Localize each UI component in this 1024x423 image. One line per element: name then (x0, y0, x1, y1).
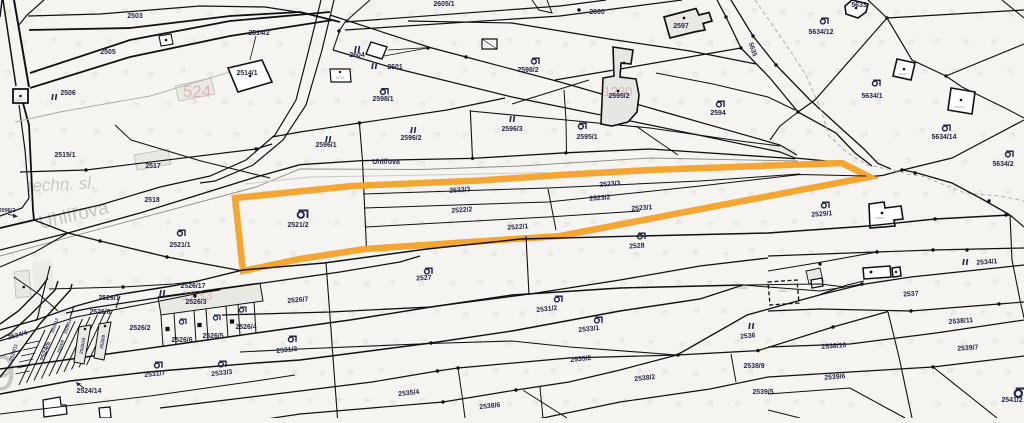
svg-text:2529/2: 2529/2 (875, 216, 885, 220)
svg-text:2506: 2506 (60, 90, 75, 97)
svg-text:2527: 2527 (416, 274, 432, 282)
svg-text:2526/5: 2526/5 (202, 333, 223, 340)
svg-text:2518: 2518 (144, 197, 159, 204)
svg-text:2539/7: 2539/7 (957, 344, 979, 352)
svg-text:2526/3: 2526/3 (185, 299, 206, 306)
svg-text:2514/1: 2514/1 (236, 70, 257, 77)
svg-text:2515/1: 2515/1 (54, 152, 75, 159)
svg-text:2596/1: 2596/1 (315, 142, 336, 149)
svg-text:Uhlířova: Uhlířova (372, 159, 400, 166)
svg-text:19705: 19705 (336, 76, 345, 80)
svg-text:2526/6: 2526/6 (171, 337, 192, 344)
svg-text:2539/6: 2539/6 (824, 373, 846, 381)
svg-text:2514/2: 2514/2 (248, 30, 269, 37)
svg-text:2538/9: 2538/9 (743, 363, 764, 370)
svg-text:2605/1: 2605/1 (433, 1, 454, 8)
svg-text:2598/1: 2598/1 (372, 96, 393, 103)
svg-text:2597: 2597 (673, 23, 688, 30)
svg-text:2523/1: 2523/1 (631, 204, 653, 212)
svg-text:2522/1: 2522/1 (507, 223, 529, 231)
svg-text:2503: 2503 (127, 13, 142, 20)
svg-text:2596/2: 2596/2 (400, 135, 421, 142)
svg-text:2541/2: 2541/2 (1001, 397, 1022, 404)
svg-text:5634/2: 5634/2 (992, 161, 1013, 168)
svg-text:2535/1: 2535/1 (738, 286, 748, 290)
svg-text:5634/12: 5634/12 (809, 29, 834, 36)
svg-text:techn. sl.: techn. sl. (27, 173, 96, 196)
svg-text:2526/1: 2526/1 (98, 295, 119, 302)
svg-text:2524/14: 2524/14 (77, 388, 102, 395)
svg-text:5634/14: 5634/14 (932, 134, 957, 141)
svg-text:2601: 2601 (387, 64, 402, 71)
svg-text:2521/1: 2521/1 (169, 242, 190, 249)
svg-text:2537: 2537 (903, 290, 919, 298)
svg-text:2540/2: 2540/2 (778, 289, 788, 293)
svg-text:2526/17: 2526/17 (181, 283, 206, 290)
svg-text:2505: 2505 (100, 49, 115, 56)
svg-text:2523/2: 2523/2 (589, 194, 611, 202)
svg-text:418/21: 418/21 (15, 98, 25, 102)
svg-text:5633: 5633 (851, 2, 866, 9)
svg-text:2526/2: 2526/2 (129, 325, 150, 332)
svg-text:2594: 2594 (710, 110, 725, 117)
svg-text:2595/1: 2595/1 (576, 134, 597, 141)
svg-text:5634/1: 5634/1 (861, 93, 882, 100)
svg-text:2096/2: 2096/2 (0, 208, 15, 214)
svg-text:2595/2: 2595/2 (608, 93, 629, 100)
svg-text:5634/5: 5634/5 (955, 105, 965, 109)
svg-text:2517: 2517 (145, 163, 160, 170)
svg-text:2522/2: 2522/2 (451, 206, 473, 214)
svg-text:2521/2: 2521/2 (287, 222, 308, 229)
svg-text:2529/1: 2529/1 (811, 210, 833, 218)
svg-text:2604: 2604 (349, 52, 364, 59)
svg-text:2526/8: 2526/8 (89, 309, 110, 316)
svg-text:2528: 2528 (629, 242, 645, 250)
svg-text:2598/2: 2598/2 (517, 67, 538, 74)
svg-text:2539/5: 2539/5 (752, 389, 773, 396)
svg-text:2526/4: 2526/4 (235, 324, 256, 331)
svg-text:2596/3: 2596/3 (501, 126, 522, 133)
svg-text:2534/1: 2534/1 (976, 258, 998, 266)
svg-text:5634/3: 5634/3 (898, 72, 908, 76)
svg-text:2523/3: 2523/3 (599, 180, 621, 188)
svg-text:2522/3: 2522/3 (449, 186, 471, 194)
svg-text:2600: 2600 (589, 9, 604, 16)
